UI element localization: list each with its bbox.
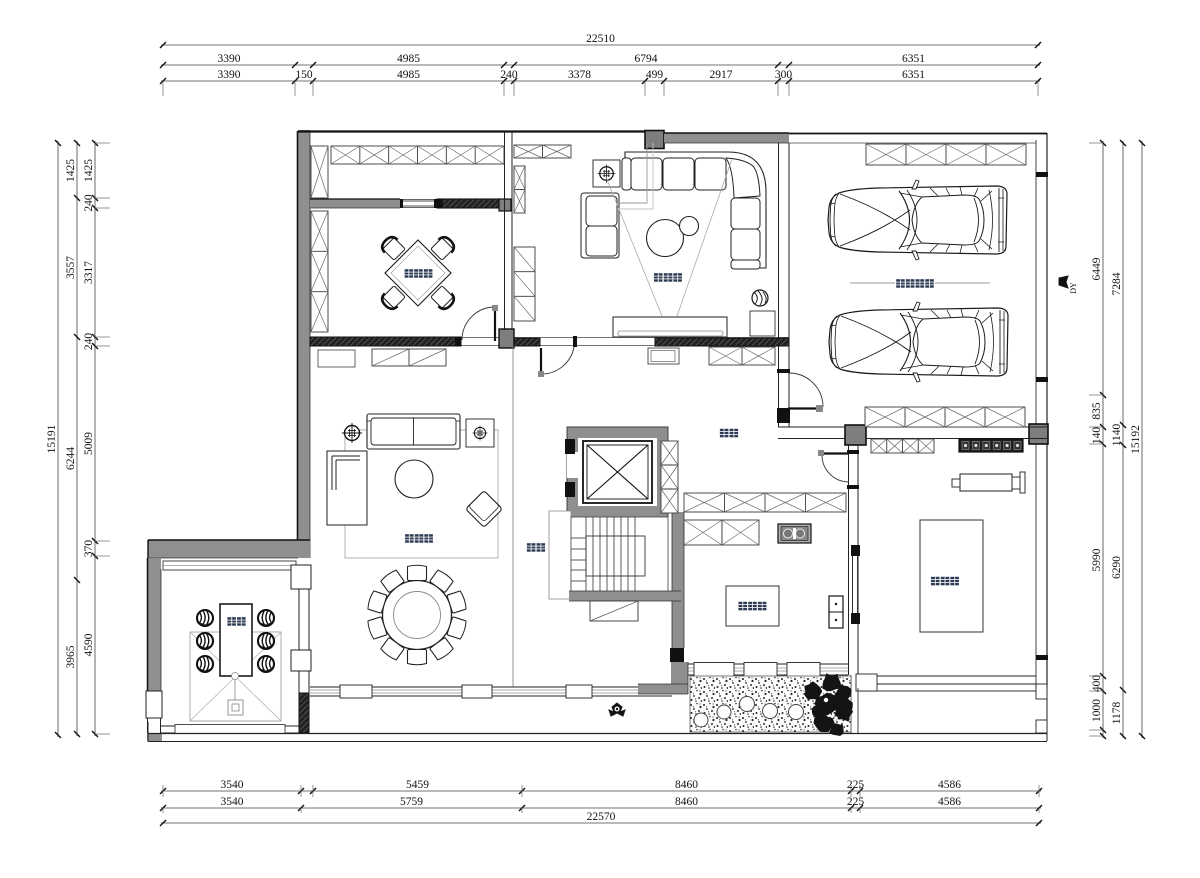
svg-text:6290: 6290 — [1111, 556, 1123, 579]
svg-text:5759: 5759 — [400, 796, 423, 808]
svg-text:5009: 5009 — [83, 432, 95, 455]
svg-text:6351: 6351 — [902, 53, 925, 65]
svg-text:225: 225 — [847, 779, 865, 791]
svg-text:3378: 3378 — [568, 69, 591, 81]
svg-text:3557: 3557 — [65, 256, 77, 279]
svg-text:5990: 5990 — [1091, 548, 1103, 571]
svg-text:225: 225 — [847, 796, 865, 808]
svg-text:15192: 15192 — [1130, 425, 1142, 454]
svg-text:240: 240 — [500, 69, 518, 81]
svg-text:8460: 8460 — [675, 779, 698, 791]
svg-text:6351: 6351 — [902, 69, 925, 81]
svg-text:1000: 1000 — [1091, 699, 1103, 722]
svg-text:4586: 4586 — [938, 796, 961, 808]
svg-text:3390: 3390 — [218, 53, 241, 65]
svg-text:1425: 1425 — [65, 159, 77, 182]
svg-text:15191: 15191 — [46, 424, 58, 453]
svg-text:6794: 6794 — [635, 53, 658, 65]
svg-text:300: 300 — [775, 69, 793, 81]
svg-text:400: 400 — [1091, 675, 1103, 693]
svg-text:5459: 5459 — [406, 779, 429, 791]
svg-text:4985: 4985 — [397, 69, 420, 81]
svg-text:DY: DY — [1069, 282, 1078, 294]
svg-text:499: 499 — [646, 69, 664, 81]
svg-text:22570: 22570 — [587, 811, 616, 823]
svg-text:3540: 3540 — [221, 779, 244, 791]
svg-text:1425: 1425 — [83, 159, 95, 182]
svg-text:2917: 2917 — [710, 69, 733, 81]
svg-text:22510: 22510 — [586, 33, 615, 45]
svg-text:1140: 1140 — [1111, 423, 1123, 446]
svg-text:4985: 4985 — [397, 53, 420, 65]
svg-text:240: 240 — [83, 194, 95, 212]
svg-text:4586: 4586 — [938, 779, 961, 791]
svg-text:7284: 7284 — [1111, 272, 1123, 295]
svg-text:6244: 6244 — [65, 447, 77, 470]
svg-text:370: 370 — [83, 540, 95, 558]
svg-text:8460: 8460 — [675, 796, 698, 808]
svg-text:3317: 3317 — [83, 261, 95, 284]
svg-text:835: 835 — [1091, 402, 1103, 420]
svg-text:6449: 6449 — [1091, 257, 1103, 280]
svg-text:1178: 1178 — [1111, 701, 1123, 724]
svg-text:3390: 3390 — [218, 69, 241, 81]
svg-text:3965: 3965 — [65, 645, 77, 668]
svg-text:150: 150 — [295, 69, 313, 81]
svg-text:4590: 4590 — [83, 633, 95, 656]
svg-text:3540: 3540 — [221, 796, 244, 808]
svg-text:140: 140 — [1091, 427, 1103, 445]
svg-text:240: 240 — [83, 333, 95, 351]
